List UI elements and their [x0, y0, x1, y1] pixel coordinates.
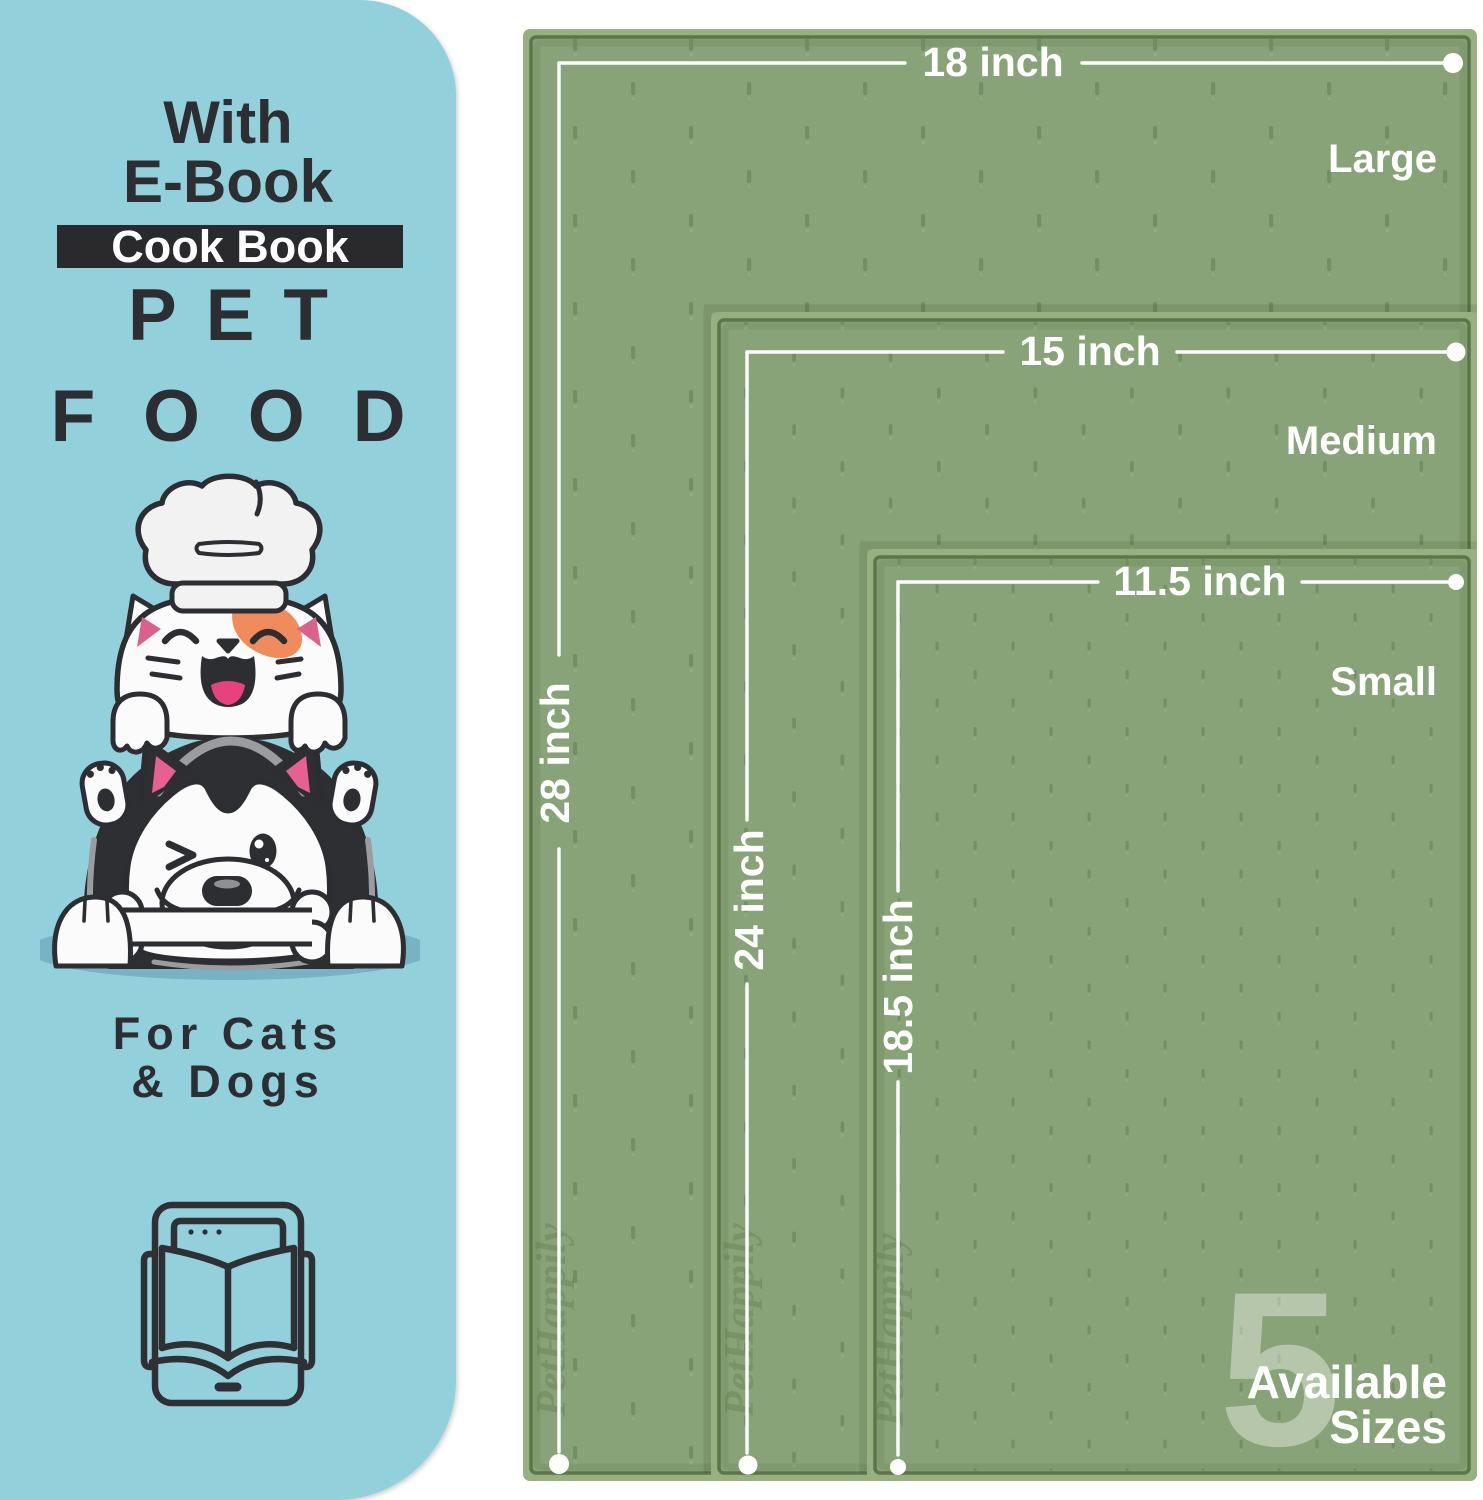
svg-text:PetHappily: PetHappily: [867, 1233, 913, 1428]
svg-text:PetHappily: PetHappily: [717, 1223, 763, 1418]
svg-text:28 inch: 28 inch: [532, 682, 578, 823]
svg-text:11.5 inch: 11.5 inch: [1113, 558, 1286, 604]
svg-text:Sizes: Sizes: [1329, 1401, 1447, 1453]
svg-text:24 inch: 24 inch: [726, 829, 772, 970]
svg-text:18 inch: 18 inch: [922, 39, 1063, 85]
svg-text:PetHappily: PetHappily: [529, 1223, 575, 1418]
svg-text:18.5 inch: 18.5 inch: [875, 899, 921, 1074]
svg-text:15 inch: 15 inch: [1019, 328, 1160, 374]
svg-text:Small: Small: [1330, 660, 1437, 704]
svg-text:Medium: Medium: [1286, 419, 1437, 463]
svg-text:Large: Large: [1328, 137, 1437, 181]
